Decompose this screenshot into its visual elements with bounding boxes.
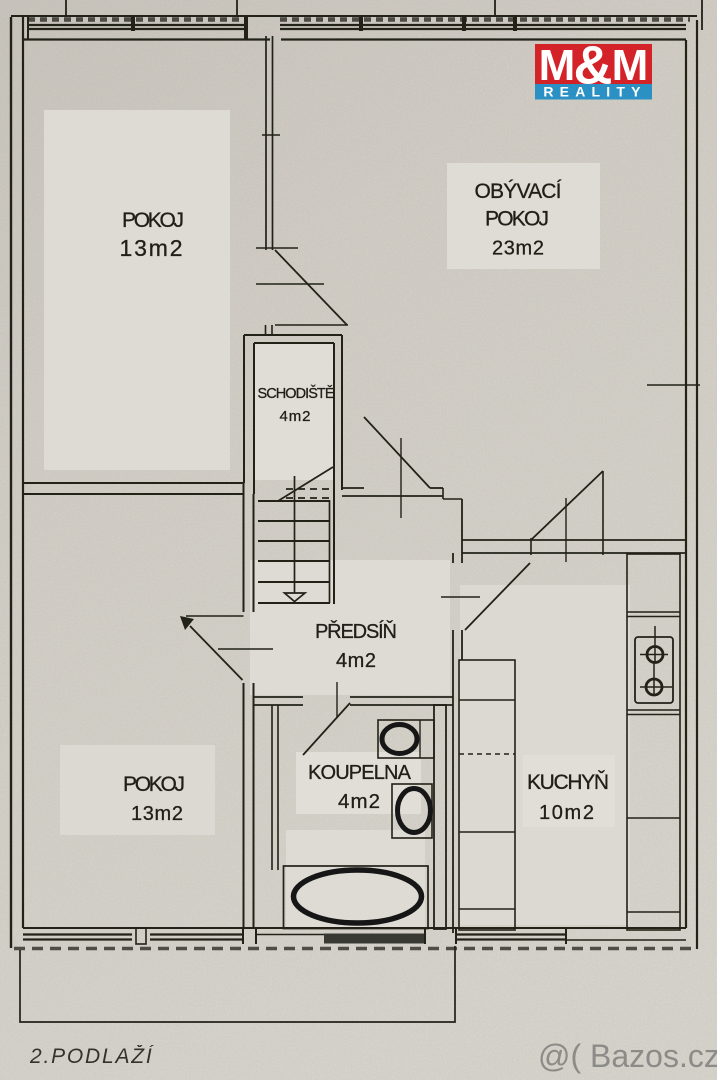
svg-text:OBÝVACÍ: OBÝVACÍ [475, 180, 562, 203]
svg-text:KOUPELNA: KOUPELNA [308, 762, 412, 784]
svg-text:POKOJ: POKOJ [123, 773, 185, 796]
svg-text:SCHODIŠTĚ: SCHODIŠTĚ [258, 385, 335, 402]
svg-text:POKOJ: POKOJ [485, 208, 549, 231]
svg-text:PŘEDSÍŇ: PŘEDSÍŇ [315, 620, 397, 643]
svg-text:10m2: 10m2 [539, 802, 594, 824]
svg-text:POKOJ: POKOJ [122, 209, 184, 232]
svg-text:13m2: 13m2 [120, 235, 183, 261]
svg-text:@( Bazos.cz: @( Bazos.cz [538, 1038, 717, 1074]
svg-text:23m2: 23m2 [492, 238, 544, 260]
svg-text:REALITY: REALITY [543, 84, 646, 100]
svg-text:4m2: 4m2 [336, 650, 376, 672]
svg-text:4m2: 4m2 [338, 790, 380, 813]
svg-text:4m2: 4m2 [280, 408, 311, 425]
svg-text:KUCHYŇ: KUCHYŇ [527, 771, 609, 794]
svg-text:2.PODLAŽÍ: 2.PODLAŽÍ [29, 1045, 155, 1068]
svg-text:13m2: 13m2 [131, 803, 183, 825]
